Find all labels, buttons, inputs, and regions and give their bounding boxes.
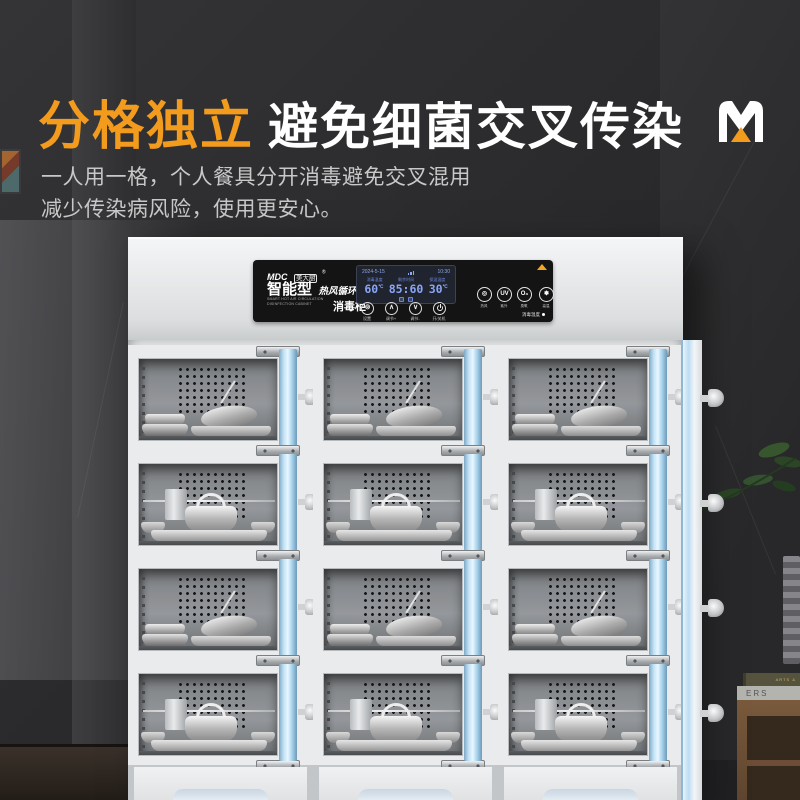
- lcd-value-keepwarm-temp: 30℃: [423, 282, 453, 296]
- open-door-knob: [700, 494, 724, 512]
- adjust-up-button-label: 调节+: [378, 316, 404, 322]
- pot: [370, 506, 422, 532]
- cup: [350, 699, 372, 730]
- tray: [336, 740, 452, 751]
- cup: [350, 489, 372, 520]
- lcd-value-disinfect-temp: 60℃: [359, 282, 389, 296]
- compartment-window: [323, 358, 463, 441]
- brand-m-logo-icon: [714, 96, 768, 144]
- plate: [376, 636, 456, 646]
- glass-door-edge: [649, 349, 667, 446]
- cup: [535, 699, 557, 730]
- registered-mark: ®: [322, 270, 326, 276]
- subtitle-line-2: 减少传染病风险，使用更安心。: [41, 193, 342, 223]
- wifi-icon: [408, 271, 415, 276]
- model-name: 智能型 热风循环: [267, 278, 356, 299]
- pot: [185, 716, 237, 742]
- knob-cap: [708, 704, 724, 722]
- compartment-cell-pot: [498, 450, 683, 555]
- cup: [535, 489, 557, 520]
- shelf-edge: [139, 751, 278, 756]
- compartment-cell-pot: [128, 660, 313, 765]
- shelf-edge: [139, 436, 278, 441]
- wall-picture-frame: [0, 149, 21, 194]
- tray: [521, 740, 637, 751]
- adjust-down-button-label: 调节-: [402, 316, 428, 322]
- pot: [370, 716, 422, 742]
- glass-door-edge: [464, 559, 482, 656]
- status-text: 消毒温度: [522, 312, 545, 318]
- wood-side-table-inner: [747, 716, 800, 800]
- compartment-cell-bowls: [313, 345, 498, 450]
- uv-label: 紫外: [494, 304, 514, 309]
- compartment-window: [138, 568, 278, 651]
- compartment-window: [138, 673, 278, 756]
- lcd-values: 60℃ 85:60 30℃: [359, 282, 453, 296]
- glass-door-edge: [649, 559, 667, 656]
- book-spine: ARTS &: [743, 673, 800, 686]
- plate: [561, 426, 641, 436]
- wood-side-table-shelf: [747, 760, 800, 766]
- knob-cap: [708, 389, 724, 407]
- lcd-date: 2024-5-15: [362, 269, 385, 275]
- panel-indicator-triangle: [537, 264, 547, 270]
- compartment-window: [508, 568, 648, 651]
- model-type-text: 智能型: [267, 281, 312, 298]
- glass-door-edge: [279, 454, 297, 551]
- cup: [165, 489, 187, 520]
- pot: [185, 506, 237, 532]
- compartment-window: [138, 358, 278, 441]
- status-dot: [542, 313, 545, 316]
- compartment-cell-bowls: [498, 555, 683, 660]
- compartment-cell-bowls: [128, 555, 313, 660]
- drawer-inset-panel: [543, 789, 638, 800]
- wood-floor: [0, 744, 130, 800]
- open-door-knob: [700, 704, 724, 722]
- disinfection-cabinet: MDC 美大厨 ® 智能型 热风循环 SMART HOT AIR CIRCULA…: [128, 237, 683, 800]
- page-title: 分格独立避免细菌交叉传染: [38, 84, 684, 159]
- glass-door-edge: [279, 664, 297, 761]
- promo-banner: ARTS & ERS 分格独立避免细菌交叉传染 一人用一格，个人餐具分开消毒避免…: [0, 0, 800, 800]
- hot-air-icon: ◎: [477, 287, 492, 302]
- shelf-edge: [324, 751, 463, 756]
- compartment-window: [508, 358, 648, 441]
- glass-door-edge: [279, 349, 297, 446]
- settings-button: ⊚: [361, 302, 374, 315]
- compartment-cell-pot: [313, 660, 498, 765]
- shelf-edge: [509, 541, 648, 546]
- plate: [561, 636, 641, 646]
- drawer-inset-panel: [358, 789, 453, 800]
- drawer-inset-panel: [173, 789, 268, 800]
- adjust-down-button: ∨: [409, 302, 422, 315]
- plant-basket: [783, 556, 800, 664]
- page-title-rest: 避免细菌交叉传染: [268, 99, 684, 155]
- compartment-window: [323, 673, 463, 756]
- settings-button-label: 设置: [354, 316, 380, 322]
- tray: [521, 530, 637, 541]
- pot: [555, 716, 607, 742]
- hot-air-label: 热风: [474, 304, 494, 309]
- plate: [191, 636, 271, 646]
- compartment-grid: [128, 340, 683, 800]
- uv-icon: UV: [497, 287, 512, 302]
- shelf-edge: [139, 541, 278, 546]
- bottom-drawer: [134, 767, 307, 800]
- adjust-up-button: ∧: [385, 302, 398, 315]
- cup: [165, 699, 187, 730]
- shelf-edge: [324, 436, 463, 441]
- subtitle-line-1: 一人用一格，个人餐具分开消毒避免交叉混用: [41, 161, 471, 191]
- compartment-cell-bowls: [128, 345, 313, 450]
- compartment-cell-pot: [128, 450, 313, 555]
- open-door-knob: [700, 599, 724, 617]
- ozone-icon: O₃: [517, 287, 532, 302]
- lcd-display: 2024-5-15 10:30 消毒温度 剩余时间 保温温度 60℃ 85:60…: [356, 265, 456, 304]
- book-spine: ERS: [737, 686, 800, 701]
- knob-cap: [708, 599, 724, 617]
- tray: [151, 530, 267, 541]
- shelf-edge: [324, 646, 463, 651]
- page-title-highlight: 分格独立: [38, 98, 254, 156]
- lcd-top-row: 2024-5-15 10:30: [362, 269, 450, 275]
- power-button: [433, 302, 446, 315]
- lcd-value-remaining-time: 85:60: [389, 282, 424, 296]
- shelf-edge: [509, 646, 648, 651]
- glass-door-edge: [464, 454, 482, 551]
- open-door-knob: [700, 389, 724, 407]
- ozone-label: 臭氧: [514, 304, 534, 309]
- glass-door-edge: [464, 349, 482, 446]
- cabinet-top-panel: MDC 美大厨 ® 智能型 热风循环 SMART HOT AIR CIRCULA…: [128, 237, 683, 340]
- lcd-time: 10:30: [437, 269, 450, 275]
- bottom-drawer: [504, 767, 677, 800]
- shelf-edge: [509, 436, 648, 441]
- compartment-cell-pot: [498, 660, 683, 765]
- wood-side-table: [737, 700, 800, 800]
- glass-door-edge: [649, 664, 667, 761]
- shelf-edge: [509, 751, 648, 756]
- compartment-window: [323, 568, 463, 651]
- lcd-mode-icon: [399, 297, 404, 302]
- shelf-edge: [324, 541, 463, 546]
- control-panel: MDC 美大厨 ® 智能型 热风循环 SMART HOT AIR CIRCULA…: [253, 260, 553, 322]
- compartment-cell-bowls: [313, 555, 498, 660]
- power-icon: [437, 305, 443, 311]
- tray: [151, 740, 267, 751]
- high-temp-label: 高温: [536, 304, 556, 309]
- high-temp-icon: ✽: [539, 287, 554, 302]
- compartment-cell-pot: [313, 450, 498, 555]
- pot: [555, 506, 607, 532]
- glass-door-edge: [279, 559, 297, 656]
- plant-leaves: [688, 428, 800, 558]
- lcd-mode-icon: [408, 297, 413, 302]
- plate: [376, 426, 456, 436]
- compartment-window: [508, 673, 648, 756]
- compartment-window: [323, 463, 463, 546]
- open-door-panel: [681, 340, 702, 800]
- plate: [191, 426, 271, 436]
- compartment-cell-bowls: [498, 345, 683, 450]
- power-button-label: 开/关机: [426, 316, 452, 322]
- model-feature-text: 热风循环: [318, 286, 356, 297]
- shelf-edge: [139, 646, 278, 651]
- glass-door-edge: [464, 664, 482, 761]
- compartment-window: [508, 463, 648, 546]
- glass-door-edge: [649, 454, 667, 551]
- bottom-drawer: [319, 767, 492, 800]
- tray: [336, 530, 452, 541]
- compartment-window: [138, 463, 278, 546]
- knob-cap: [708, 494, 724, 512]
